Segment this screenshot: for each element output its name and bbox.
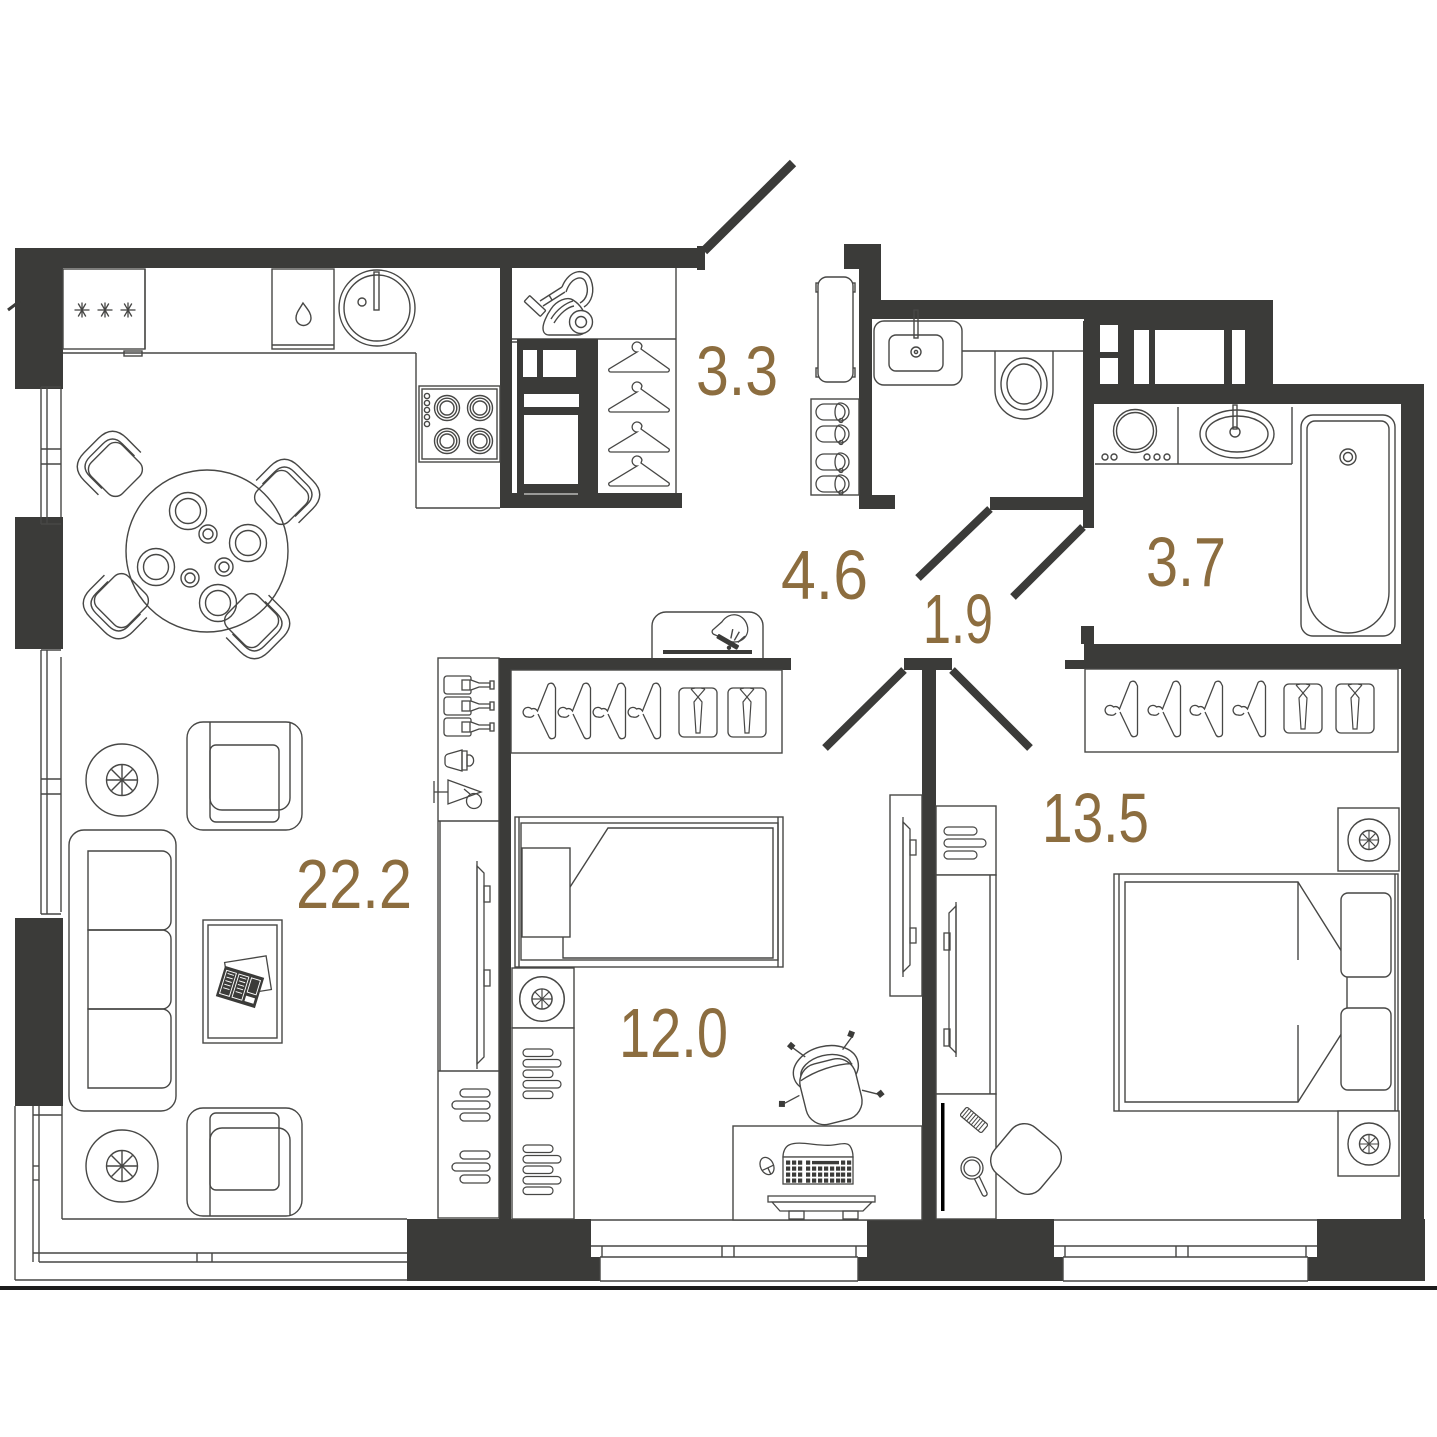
svg-text:3.7: 3.7 — [1146, 523, 1226, 601]
svg-text:22.2: 22.2 — [296, 845, 412, 923]
svg-text:12.0: 12.0 — [619, 994, 728, 1072]
svg-text:1.9: 1.9 — [923, 580, 993, 658]
svg-text:13.5: 13.5 — [1042, 779, 1149, 857]
svg-text:4.6: 4.6 — [781, 536, 868, 614]
svg-text:3.3: 3.3 — [696, 332, 778, 410]
